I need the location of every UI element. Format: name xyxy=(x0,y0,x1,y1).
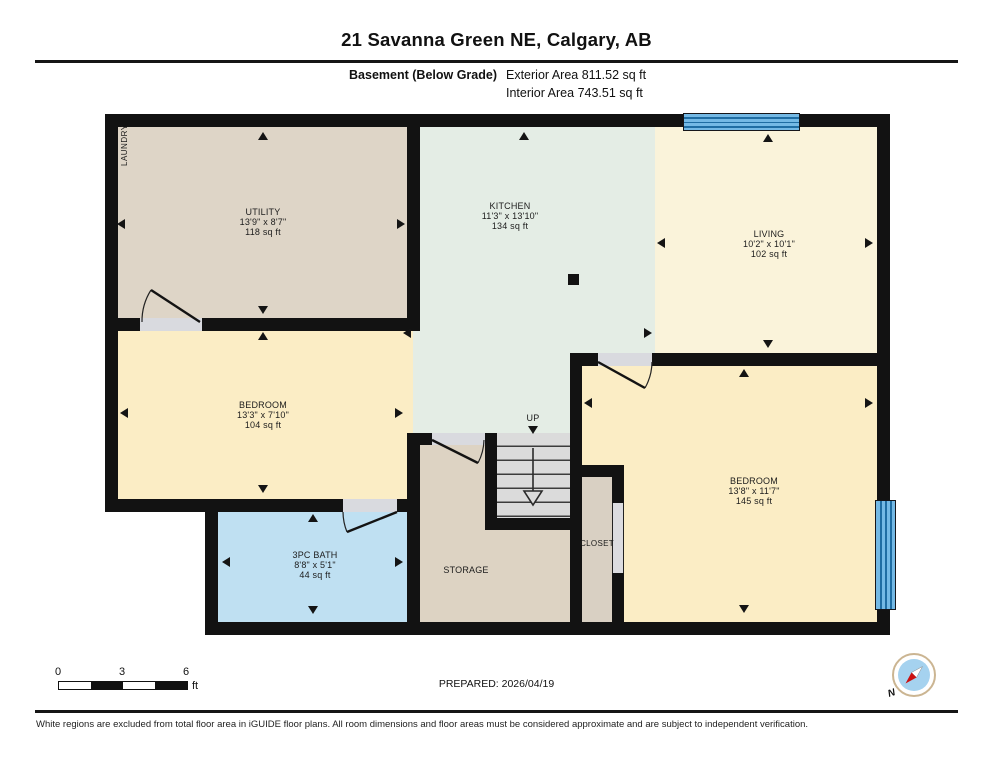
scale-tick-6: 6 xyxy=(183,666,189,678)
label-bath: 3PC BATH 8'8" x 5'1" 44 sq ft xyxy=(293,550,338,580)
footer-divider xyxy=(35,710,958,713)
wall xyxy=(570,353,582,622)
door-threshold xyxy=(140,318,202,331)
header-divider xyxy=(35,60,958,63)
dimension-arrow-icon xyxy=(308,606,318,614)
dimension-arrow-icon xyxy=(222,557,230,567)
staircase xyxy=(497,433,570,518)
dimension-arrow-icon xyxy=(258,332,268,340)
room-kitchen xyxy=(420,353,570,433)
dimension-arrow-icon xyxy=(865,238,873,248)
room-kitchen xyxy=(420,127,655,353)
structural-post xyxy=(568,274,579,285)
dimension-arrow-icon xyxy=(528,426,538,434)
dimension-arrow-icon xyxy=(395,408,403,418)
dimension-arrow-icon xyxy=(519,132,529,140)
wall xyxy=(205,622,890,635)
wall xyxy=(205,499,218,635)
window-top xyxy=(683,113,800,131)
wall xyxy=(485,518,582,530)
label-bedroom-left: BEDROOM 13'3" x 7'10" 104 sq ft xyxy=(237,400,289,430)
room-storage xyxy=(485,530,570,622)
scale-bar xyxy=(58,681,188,690)
label-kitchen: KITCHEN 11'3" x 13'10" 134 sq ft xyxy=(482,201,539,231)
label-laundry: LAUNDRY xyxy=(120,152,134,200)
scale-tick-3: 3 xyxy=(119,666,125,678)
wall xyxy=(105,499,343,512)
dimension-arrow-icon xyxy=(865,398,873,408)
wall xyxy=(407,114,420,331)
wall xyxy=(485,433,497,530)
wall xyxy=(570,353,598,366)
dimension-arrow-icon xyxy=(739,369,749,377)
interior-area-text: Interior Area 743.51 sq ft xyxy=(506,86,643,100)
wall xyxy=(202,318,420,331)
dimension-arrow-icon xyxy=(657,238,665,248)
floor-label: Basement (Below Grade) xyxy=(250,68,497,82)
door-threshold xyxy=(598,353,652,366)
page-title: 21 Savanna Green NE, Calgary, AB xyxy=(0,29,993,51)
wall xyxy=(407,433,432,445)
dimension-arrow-icon xyxy=(763,340,773,348)
dimension-arrow-icon xyxy=(584,398,592,408)
label-bedroom-right: BEDROOM 13'8" x 11'7" 145 sq ft xyxy=(728,476,779,506)
room-storage xyxy=(420,445,485,622)
dimension-arrow-icon xyxy=(739,605,749,613)
scale-tick-0: 0 xyxy=(55,666,61,678)
wall xyxy=(407,433,420,635)
window-right xyxy=(875,500,896,610)
label-closet: CLOSET xyxy=(580,539,614,548)
dimension-arrow-icon xyxy=(258,485,268,493)
label-storage: STORAGE xyxy=(443,565,488,575)
dimension-arrow-icon xyxy=(258,306,268,314)
dimension-arrow-icon xyxy=(395,557,403,567)
dimension-arrow-icon xyxy=(403,328,411,338)
wall xyxy=(612,477,624,503)
dimension-arrow-icon xyxy=(644,328,652,338)
dimension-arrow-icon xyxy=(258,132,268,140)
room-closet xyxy=(582,477,612,622)
door-threshold xyxy=(432,433,487,445)
room-kitchen xyxy=(413,331,420,433)
dimension-arrow-icon xyxy=(763,134,773,142)
wall xyxy=(105,318,140,331)
exterior-area-text: Exterior Area 811.52 sq ft xyxy=(506,68,646,82)
dimension-arrow-icon xyxy=(397,219,405,229)
floor-plan-page: 21 Savanna Green NE, Calgary, AB Basemen… xyxy=(0,0,993,768)
dimension-arrow-icon xyxy=(117,219,125,229)
wall xyxy=(652,353,878,366)
door-threshold xyxy=(343,499,397,512)
label-utility: UTILITY 13'9" x 8'7" 118 sq ft xyxy=(240,207,287,237)
wall xyxy=(612,573,624,622)
closet-sliding-door xyxy=(612,503,624,573)
label-up: UP xyxy=(527,413,540,423)
wall xyxy=(105,114,118,512)
wall xyxy=(582,465,624,477)
dimension-arrow-icon xyxy=(308,514,318,522)
disclaimer-text: White regions are excluded from total fl… xyxy=(36,719,966,730)
dimension-arrow-icon xyxy=(120,408,128,418)
label-living: LIVING 10'2" x 10'1" 102 sq ft xyxy=(743,229,795,259)
